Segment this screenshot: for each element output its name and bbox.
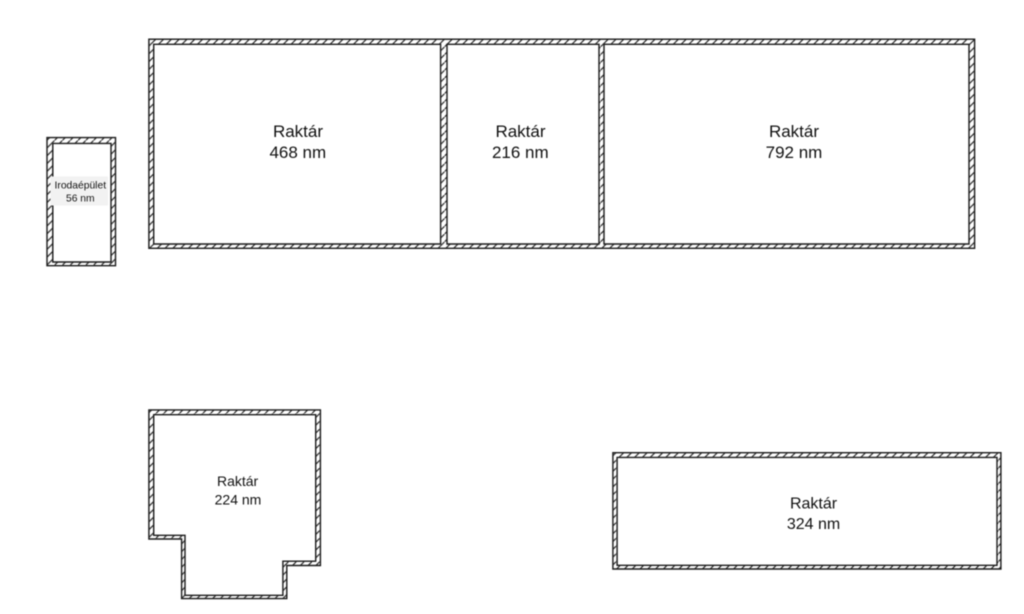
svg-text:224 nm: 224 nm <box>215 491 262 507</box>
svg-text:468 nm: 468 nm <box>269 143 326 162</box>
svg-text:Irodaépület: Irodaépület <box>55 181 107 192</box>
svg-text:Raktár: Raktár <box>273 122 323 141</box>
svg-text:Raktár: Raktár <box>790 496 838 513</box>
svg-text:324 nm: 324 nm <box>787 516 840 533</box>
svg-text:Raktár: Raktár <box>769 122 819 141</box>
svg-text:792 nm: 792 nm <box>766 143 823 162</box>
svg-text:216 nm: 216 nm <box>492 143 549 162</box>
svg-text:56 nm: 56 nm <box>66 194 95 205</box>
svg-text:Raktár: Raktár <box>217 473 259 489</box>
svg-text:Raktár: Raktár <box>495 122 545 141</box>
